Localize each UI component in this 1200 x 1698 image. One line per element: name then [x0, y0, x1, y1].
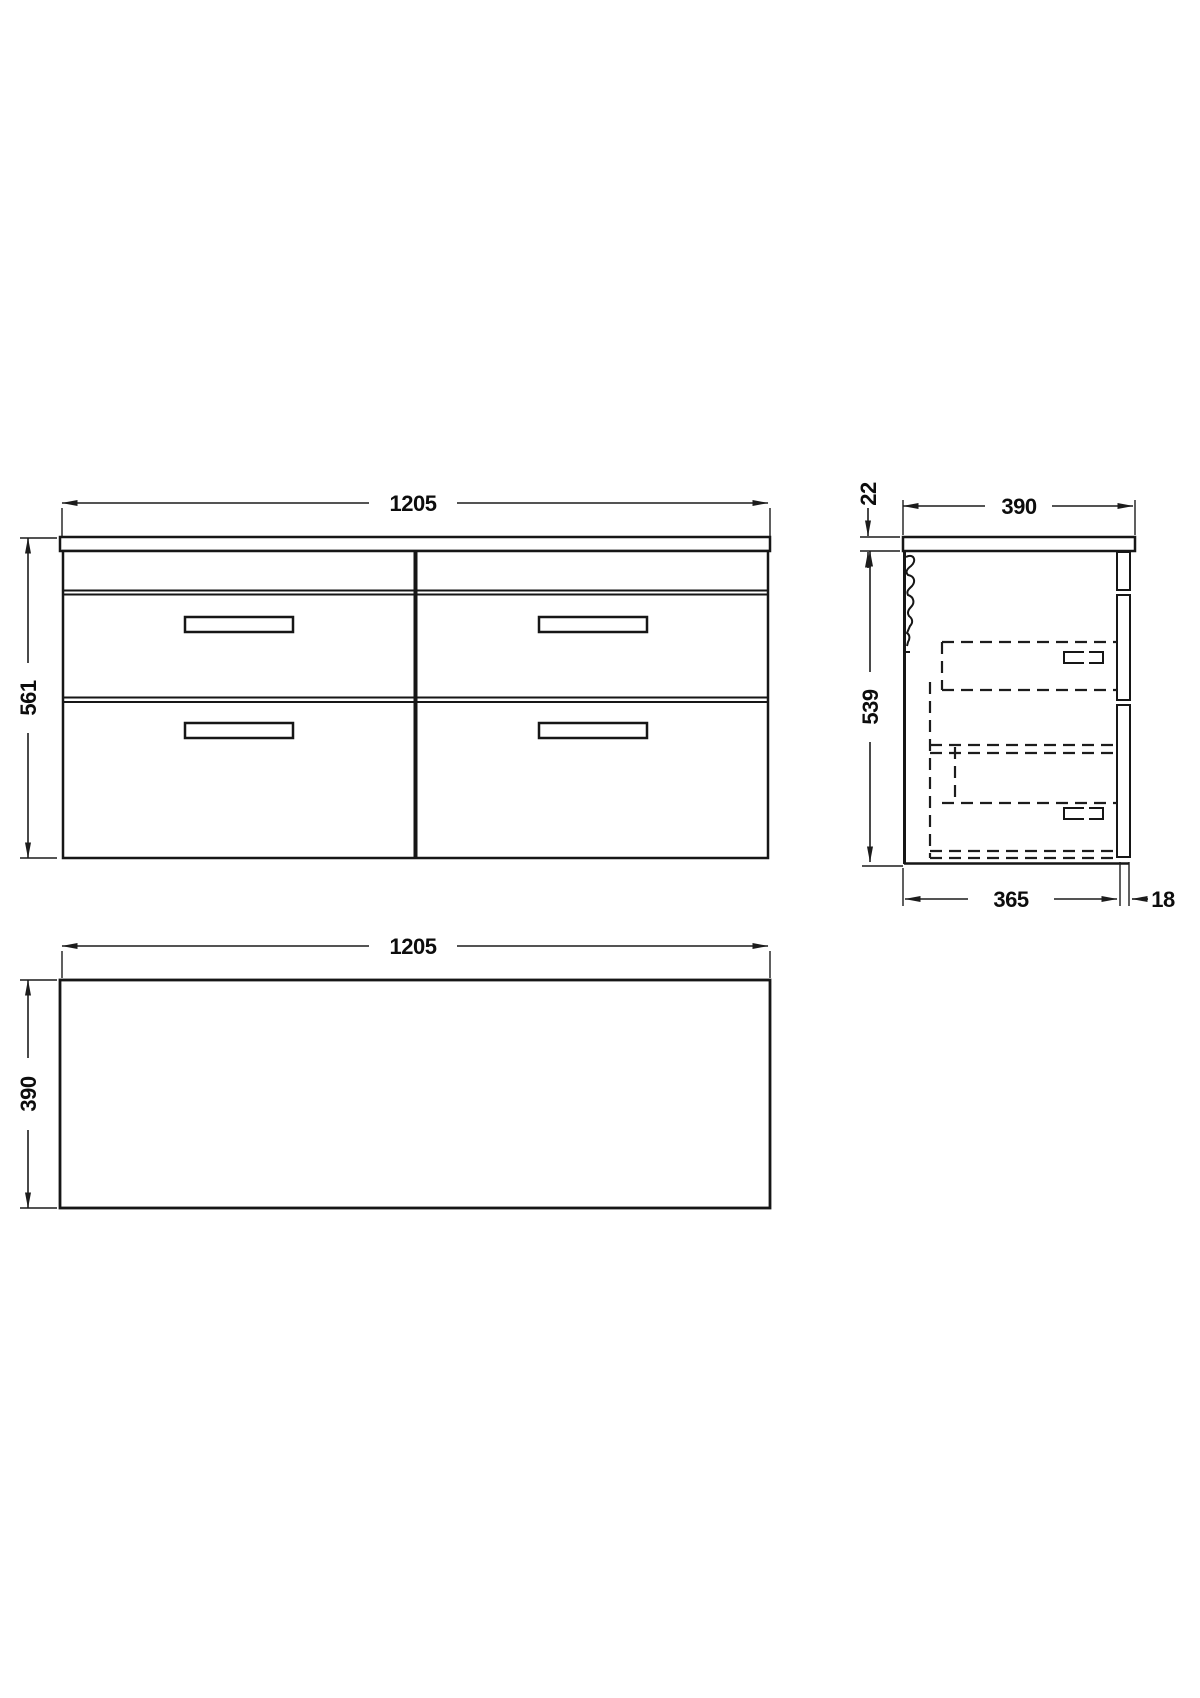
handle-top-right — [539, 617, 647, 632]
plan-depth-dimension: 390 — [16, 980, 57, 1208]
front-countertop — [60, 537, 770, 551]
side-depth-label: 390 — [1001, 494, 1036, 519]
side-view: 22 390 539 — [856, 482, 1175, 912]
side-hidden-drawer-lines — [930, 642, 1117, 858]
side-height-label: 539 — [858, 689, 883, 724]
side-carcass-depth-label: 365 — [993, 887, 1028, 912]
plan-width-dimension: 1205 — [62, 934, 770, 978]
plan-width-label: 1205 — [390, 934, 437, 959]
side-counter-thickness-dimension: 22 — [856, 482, 900, 568]
front-width-dimension: 1205 — [62, 491, 770, 536]
side-front-thickness-label: 18 — [1151, 887, 1175, 912]
side-depth-dimension: 390 — [903, 494, 1135, 535]
side-carcass-outline — [904, 551, 1129, 864]
side-height-dimension: 539 — [858, 551, 903, 866]
side-carcass-depth-dimension: 365 — [903, 862, 1129, 912]
side-countertop — [903, 537, 1135, 551]
side-front-thickness-dimension: 18 — [1132, 887, 1175, 912]
vanity-technical-drawing: 1205 561 — [0, 0, 1200, 1698]
handle-bottom-right — [539, 723, 647, 738]
side-counter-thickness-label: 22 — [856, 482, 881, 506]
plan-countertop-outline — [60, 980, 770, 1208]
plan-depth-label: 390 — [16, 1076, 41, 1111]
front-height-label: 561 — [16, 680, 41, 715]
handle-top-left — [185, 617, 293, 632]
side-drawer-front-panels — [1117, 552, 1130, 857]
front-view: 1205 561 — [16, 491, 770, 858]
handle-bottom-left — [185, 723, 293, 738]
plan-view: 1205 390 — [16, 934, 770, 1208]
side-hidden-handle-icons — [1064, 652, 1103, 819]
front-width-label: 1205 — [390, 491, 437, 516]
technical-drawing-page: 1205 561 — [0, 0, 1200, 1698]
front-height-dimension: 561 — [16, 538, 57, 858]
